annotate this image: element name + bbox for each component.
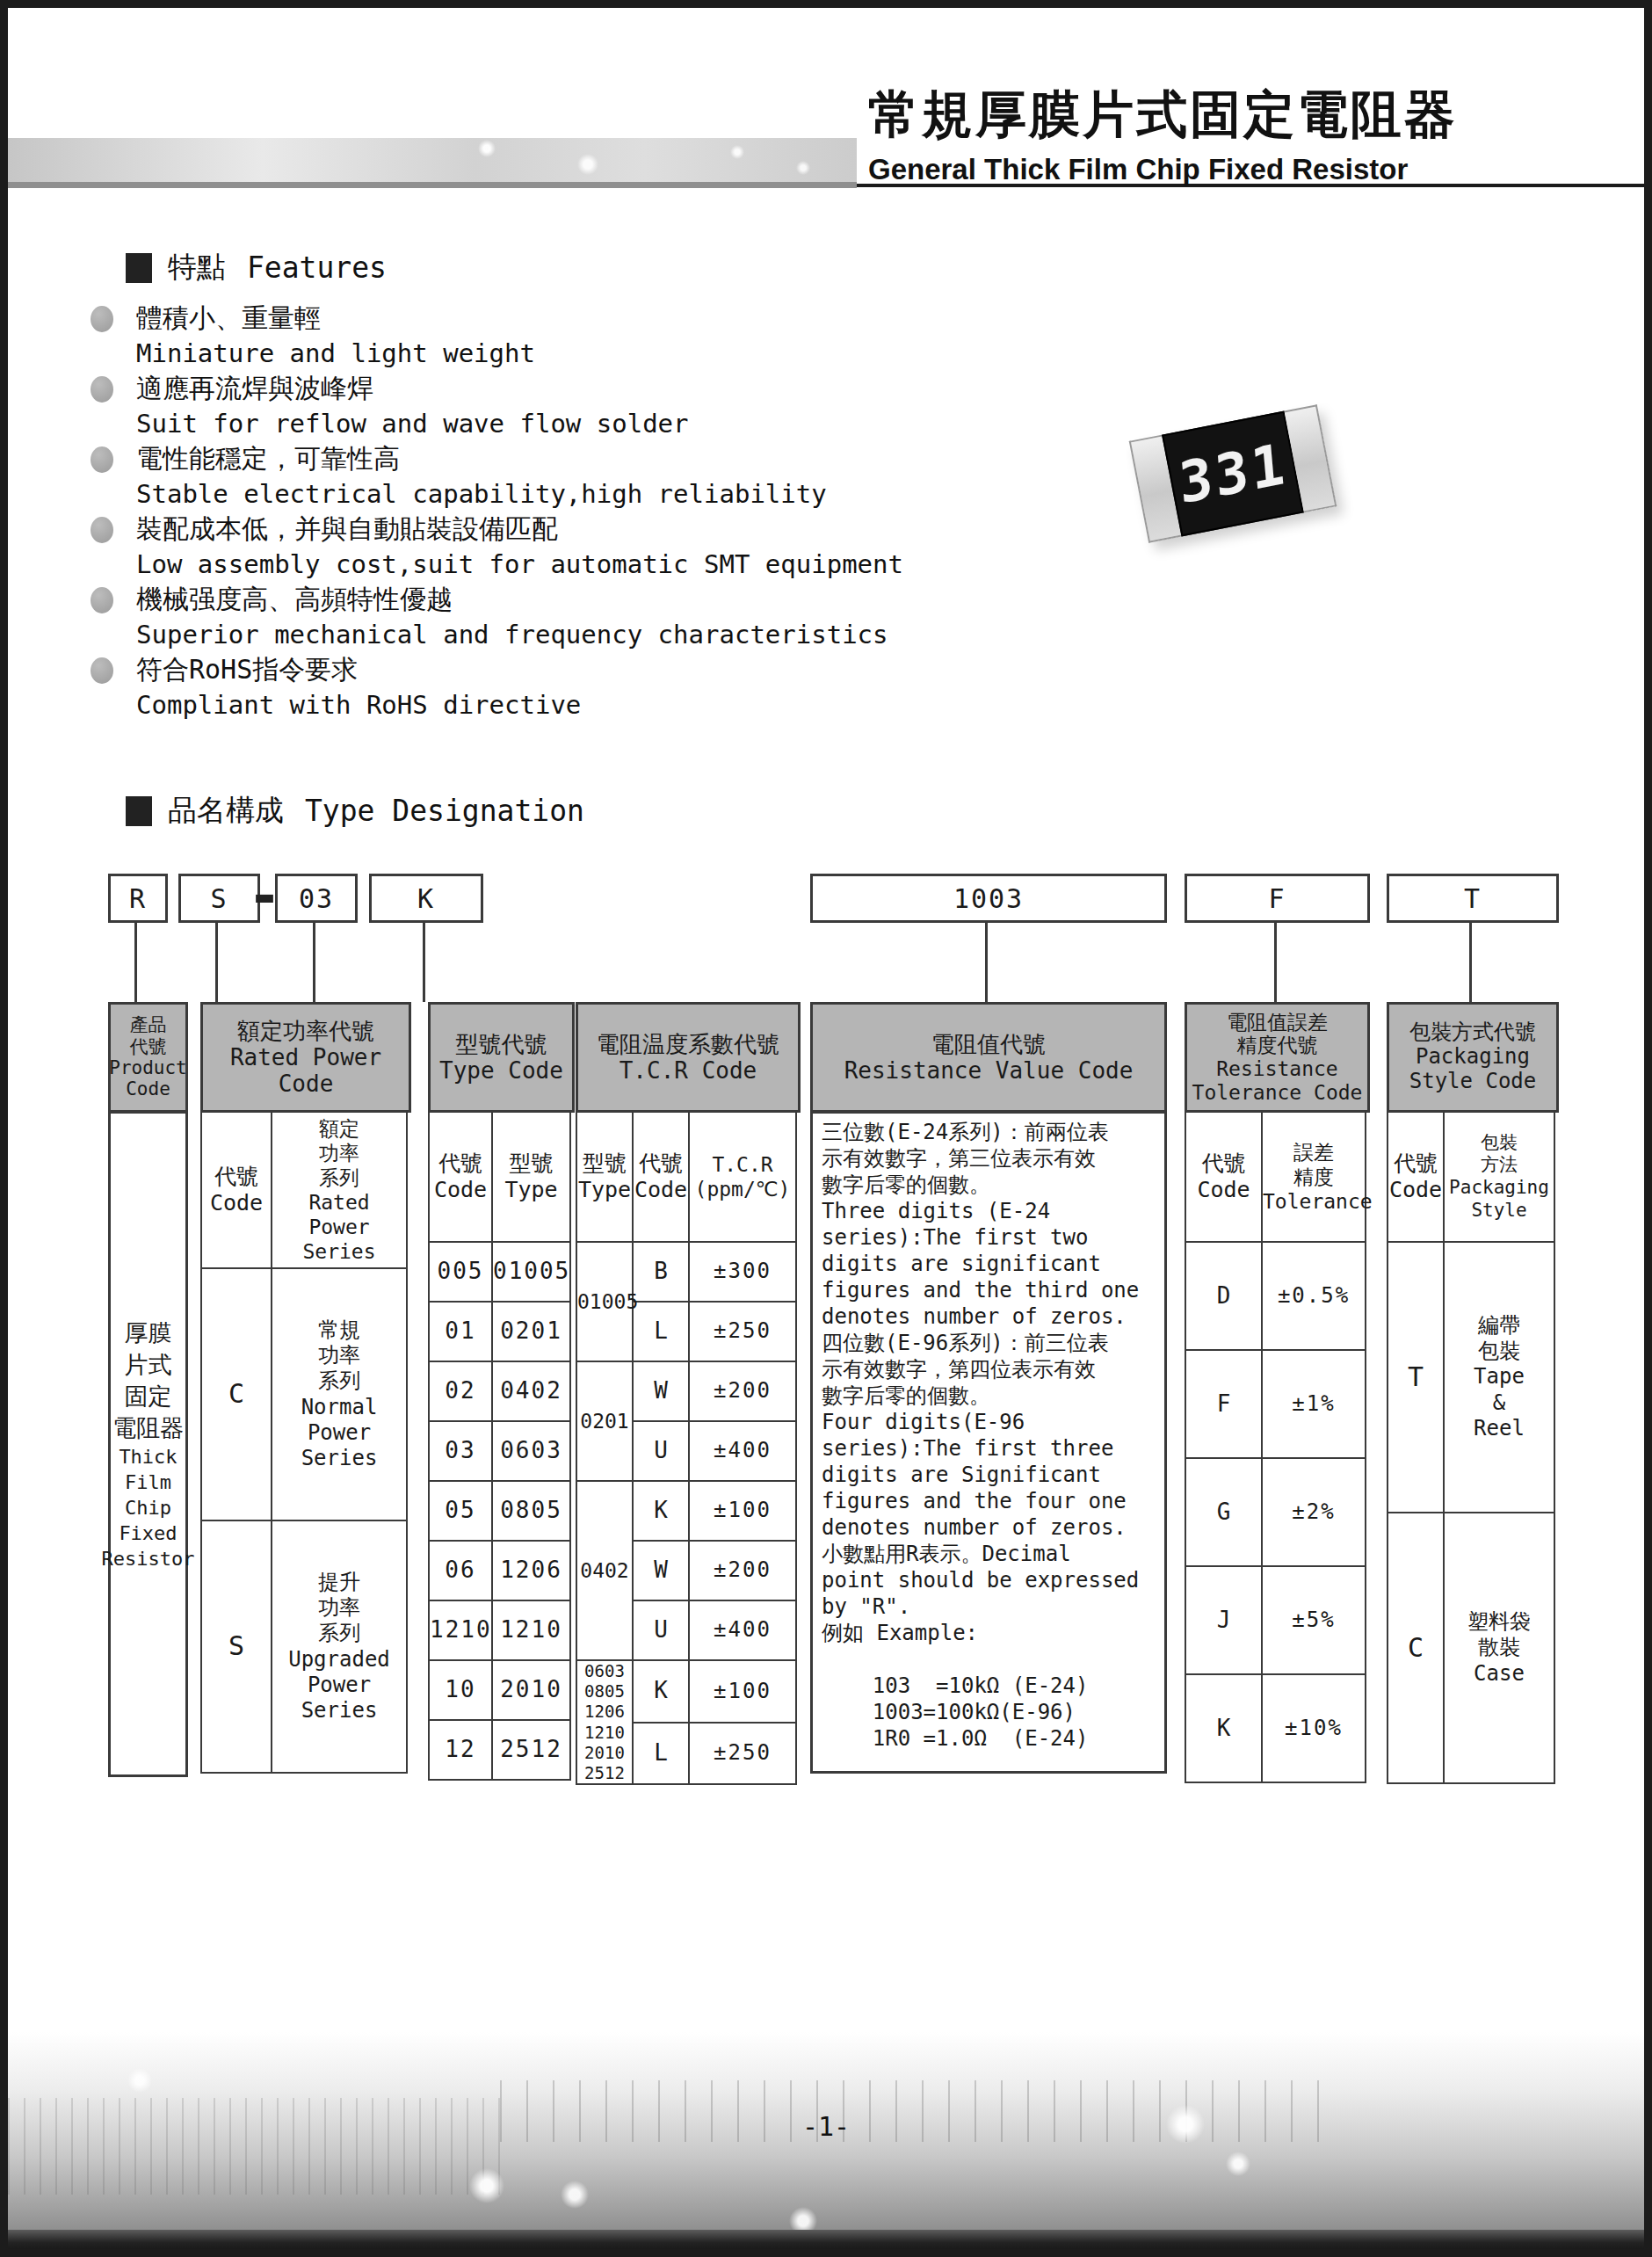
bullet-icon — [91, 446, 113, 473]
tolerance-value-cell: ±0.5% — [1262, 1242, 1366, 1350]
code-box-product: R — [108, 874, 168, 923]
column-header-value: 電阻值代號 Resistance Value Code — [810, 1002, 1167, 1113]
feature-text-en: Low assembly cost,suit for automatic SMT… — [136, 547, 952, 582]
type-code-cell: 05 — [429, 1481, 492, 1541]
tolerance-value-cell: ±10% — [1262, 1674, 1366, 1782]
tcr-code-cell: W — [633, 1361, 689, 1421]
features-heading-cjk: 特點 — [168, 248, 226, 287]
resistor-photo: 331 — [1127, 397, 1355, 582]
value-description-text: 三位數(E-24系列)：前兩位表 示有效數字，第三位表示有效 數字后零的個數。 … — [813, 1114, 1164, 1752]
tcr-table: 型號 Type 代號 Code T.C.R (ppm/℃) 01005 B ±3… — [576, 1111, 797, 1785]
features-list: 體積小、重量輕 Miniature and light weight 適應再流焊… — [91, 301, 952, 722]
designation-heading: 品名構成 Type Designation — [126, 791, 584, 831]
designation-heading-cjk: 品名構成 — [168, 791, 284, 831]
tcr-code-cell: L — [633, 1723, 689, 1785]
type-size-cell: 2010 — [492, 1660, 570, 1720]
type-size-cell: 01005 — [492, 1242, 570, 1302]
connector-line — [313, 920, 315, 1002]
tcr-type-cell: 0603 0805 1206 1210 2010 2512 — [576, 1660, 633, 1784]
power-code-cell: S — [201, 1520, 272, 1773]
tcr-type-cell: 0201 — [576, 1361, 633, 1481]
page-title: 常規厚膜片式固定電阻器 — [868, 81, 1458, 149]
tcr-value-cell: ±400 — [689, 1600, 796, 1660]
tolerance-value-cell: ±2% — [1262, 1458, 1366, 1566]
power-sub-code: 代號 Code — [201, 1112, 272, 1268]
packaging-code-cell: T — [1388, 1242, 1444, 1513]
tcr-code-cell: K — [633, 1481, 689, 1541]
bullet-icon — [91, 587, 113, 613]
type-code-cell: 10 — [429, 1660, 492, 1720]
tcr-sub-tcr: T.C.R (ppm/℃) — [689, 1112, 796, 1242]
packaging-table: 代號 Code 包裝 方法 Packaging Style T 編帶 包裝 Ta… — [1387, 1111, 1555, 1784]
tolerance-sub-tol: 誤差 精度 Tolerance — [1262, 1112, 1366, 1242]
packaging-sub-code: 代號 Code — [1388, 1112, 1444, 1242]
tcr-sub-code: 代號 Code — [633, 1112, 689, 1242]
tcr-code-cell: U — [633, 1600, 689, 1660]
tcr-code-cell: L — [633, 1302, 689, 1361]
feature-text-en: Stable electrical capability,high reliab… — [136, 476, 952, 512]
connector-line — [1469, 920, 1472, 1002]
code-separator-dash: - — [251, 874, 278, 918]
type-code-cell: 02 — [429, 1361, 492, 1421]
tolerance-code-cell: J — [1185, 1566, 1262, 1674]
feature-text-en: Superior mechanical and frequency charac… — [136, 617, 952, 652]
feature-text-en: Miniature and light weight — [136, 336, 952, 371]
page-subtitle: General Thick Film Chip Fixed Resistor — [868, 153, 1408, 186]
bullet-icon — [91, 657, 113, 684]
type-size-cell: 2512 — [492, 1720, 570, 1780]
feature-text-en: Suit for reflow and wave flow solder — [136, 406, 952, 441]
type-sub-code: 代號 Code — [429, 1112, 492, 1242]
tcr-type-cell: 0402 — [576, 1481, 633, 1660]
tolerance-sub-code: 代號 Code — [1185, 1112, 1262, 1242]
type-size-cell: 1210 — [492, 1600, 570, 1660]
type-code-cell: 01 — [429, 1302, 492, 1361]
tcr-value-cell: ±400 — [689, 1421, 796, 1481]
datasheet-page: 常規厚膜片式固定電阻器 General Thick Film Chip Fixe… — [0, 0, 1652, 2257]
packaging-sub-style: 包裝 方法 Packaging Style — [1444, 1112, 1554, 1242]
power-series-cell: 提升 功率 系列 Upgraded Power Series — [272, 1520, 407, 1773]
power-sub-series: 額定 功率 系列 Rated Power Series — [272, 1112, 407, 1268]
connector-line — [1274, 920, 1277, 1002]
type-code-cell: 005 — [429, 1242, 492, 1302]
tcr-value-cell: ±200 — [689, 1361, 796, 1421]
tolerance-code-cell: K — [1185, 1674, 1262, 1782]
tolerance-code-cell: G — [1185, 1458, 1262, 1566]
tcr-value-cell: ±200 — [689, 1541, 796, 1600]
type-code-cell: 1210 — [429, 1600, 492, 1660]
feature-item: 電性能穩定，可靠性高 Stable electrical capability,… — [91, 441, 952, 512]
packaging-style-cell: 編帶 包裝 Tape & Reel — [1444, 1242, 1554, 1513]
product-body-cjk: 厚膜 片式 固定 電阻器 — [112, 1317, 184, 1444]
code-box-tolerance: F — [1185, 874, 1370, 923]
product-body-cell: 厚膜 片式 固定 電阻器 Thick Film Chip Fixed Resis… — [108, 1111, 188, 1777]
tcr-type-cell: 01005 — [576, 1242, 633, 1361]
tolerance-code-cell: F — [1185, 1350, 1262, 1458]
feature-text-cjk: 體積小、重量輕 — [136, 301, 952, 336]
type-sub-type: 型號 Type — [492, 1112, 570, 1242]
feature-item: 適應再流焊與波峰焊 Suit for reflow and wave flow … — [91, 371, 952, 441]
feature-text-cjk: 符合RoHS指令要求 — [136, 652, 952, 687]
feature-item: 符合RoHS指令要求 Compliant with RoHS directive — [91, 652, 952, 722]
feature-text-en: Compliant with RoHS directive — [136, 687, 952, 722]
tcr-value-cell: ±250 — [689, 1723, 796, 1785]
packaging-code-cell: C — [1388, 1513, 1444, 1783]
features-heading-en: Features — [247, 250, 387, 285]
column-header-type: 型號代號 Type Code — [428, 1002, 575, 1113]
tolerance-table: 代號 Code 誤差 精度 Tolerance D±0.5% F±1% G±2%… — [1185, 1111, 1366, 1783]
code-box-tcr: K — [369, 874, 483, 923]
resistor-marking: 331 — [1177, 431, 1290, 517]
section-square-icon — [126, 253, 152, 283]
tcr-code-cell: B — [633, 1242, 689, 1302]
tolerance-code-cell: D — [1185, 1242, 1262, 1350]
power-code-cell: C — [201, 1268, 272, 1520]
section-square-icon — [126, 796, 152, 826]
feature-text-cjk: 電性能穩定，可靠性高 — [136, 441, 952, 476]
connector-line — [423, 920, 425, 1002]
bottom-dark-strip — [8, 2230, 1644, 2253]
type-size-cell: 0402 — [492, 1361, 570, 1421]
connector-line — [134, 920, 137, 1002]
column-header-power: 額定功率代號 Rated Power Code — [200, 1002, 411, 1113]
feature-item: 體積小、重量輕 Miniature and light weight — [91, 301, 952, 371]
tcr-value-cell: ±100 — [689, 1660, 796, 1723]
bullet-icon — [91, 517, 113, 543]
type-code-cell: 12 — [429, 1720, 492, 1780]
type-size-cell: 1206 — [492, 1541, 570, 1600]
feature-text-cjk: 機械强度高、高頻特性優越 — [136, 582, 952, 617]
feature-item: 裝配成本低，并與自動貼裝設備匹配 Low assembly cost,suit … — [91, 512, 952, 582]
tcr-code-cell: U — [633, 1421, 689, 1481]
column-header-tcr: 電阻温度系數代號 T.C.R Code — [576, 1002, 801, 1113]
code-box-packaging: T — [1387, 874, 1559, 923]
type-size-cell: 0805 — [492, 1481, 570, 1541]
page-number: -1- — [0, 2111, 1652, 2142]
power-series-cell: 常規 功率 系列 Normal Power Series — [272, 1268, 407, 1520]
feature-text-cjk: 裝配成本低，并與自動貼裝設備匹配 — [136, 512, 952, 547]
tolerance-value-cell: ±1% — [1262, 1350, 1366, 1458]
connector-line — [215, 920, 218, 1002]
connector-line — [985, 920, 988, 1002]
column-header-product: 產品 代號 Product Code — [108, 1002, 188, 1113]
type-size-cell: 0201 — [492, 1302, 570, 1361]
bullet-icon — [91, 306, 113, 332]
packaging-style-cell: 塑料袋 散裝 Case — [1444, 1513, 1554, 1783]
tcr-value-cell: ±300 — [689, 1242, 796, 1302]
tcr-value-cell: ±100 — [689, 1481, 796, 1541]
feature-item: 機械强度高、高頻特性優越 Superior mechanical and fre… — [91, 582, 952, 652]
type-size-cell: 0603 — [492, 1421, 570, 1481]
tcr-code-cell: W — [633, 1541, 689, 1600]
features-heading: 特點 Features — [126, 248, 387, 287]
column-header-packaging: 包裝方式代號 Packaging Style Code — [1387, 1002, 1559, 1113]
tcr-code-cell: K — [633, 1660, 689, 1723]
type-table: 代號 Code 型號 Type 00501005 010201 020402 0… — [428, 1111, 571, 1781]
type-code-cell: 06 — [429, 1541, 492, 1600]
top-gradient-band — [8, 138, 857, 188]
tolerance-value-cell: ±5% — [1262, 1566, 1366, 1674]
tcr-value-cell: ±250 — [689, 1302, 796, 1361]
column-header-tolerance: 電阻值誤差 精度代號 Resistance Tolerance Code — [1185, 1002, 1370, 1113]
type-code-cell: 03 — [429, 1421, 492, 1481]
code-box-value: 1003 — [810, 874, 1167, 923]
product-body-en: Thick Film Chip Fixed Resistor — [102, 1444, 195, 1571]
value-body-cell: 三位數(E-24系列)：前兩位表 示有效數字，第三位表示有效 數字后零的個數。 … — [810, 1111, 1167, 1774]
feature-text-cjk: 適應再流焊與波峰焊 — [136, 371, 952, 406]
code-box-type: 03 — [275, 874, 358, 923]
designation-heading-en: Type Designation — [305, 794, 584, 828]
tcr-sub-type: 型號 Type — [576, 1112, 633, 1242]
resistor-body: 331 — [1162, 411, 1304, 537]
chip-resistor: 331 — [1129, 404, 1337, 542]
power-table: 代號 Code 額定 功率 系列 Rated Power Series C 常規… — [200, 1111, 408, 1774]
bullet-icon — [91, 376, 113, 403]
